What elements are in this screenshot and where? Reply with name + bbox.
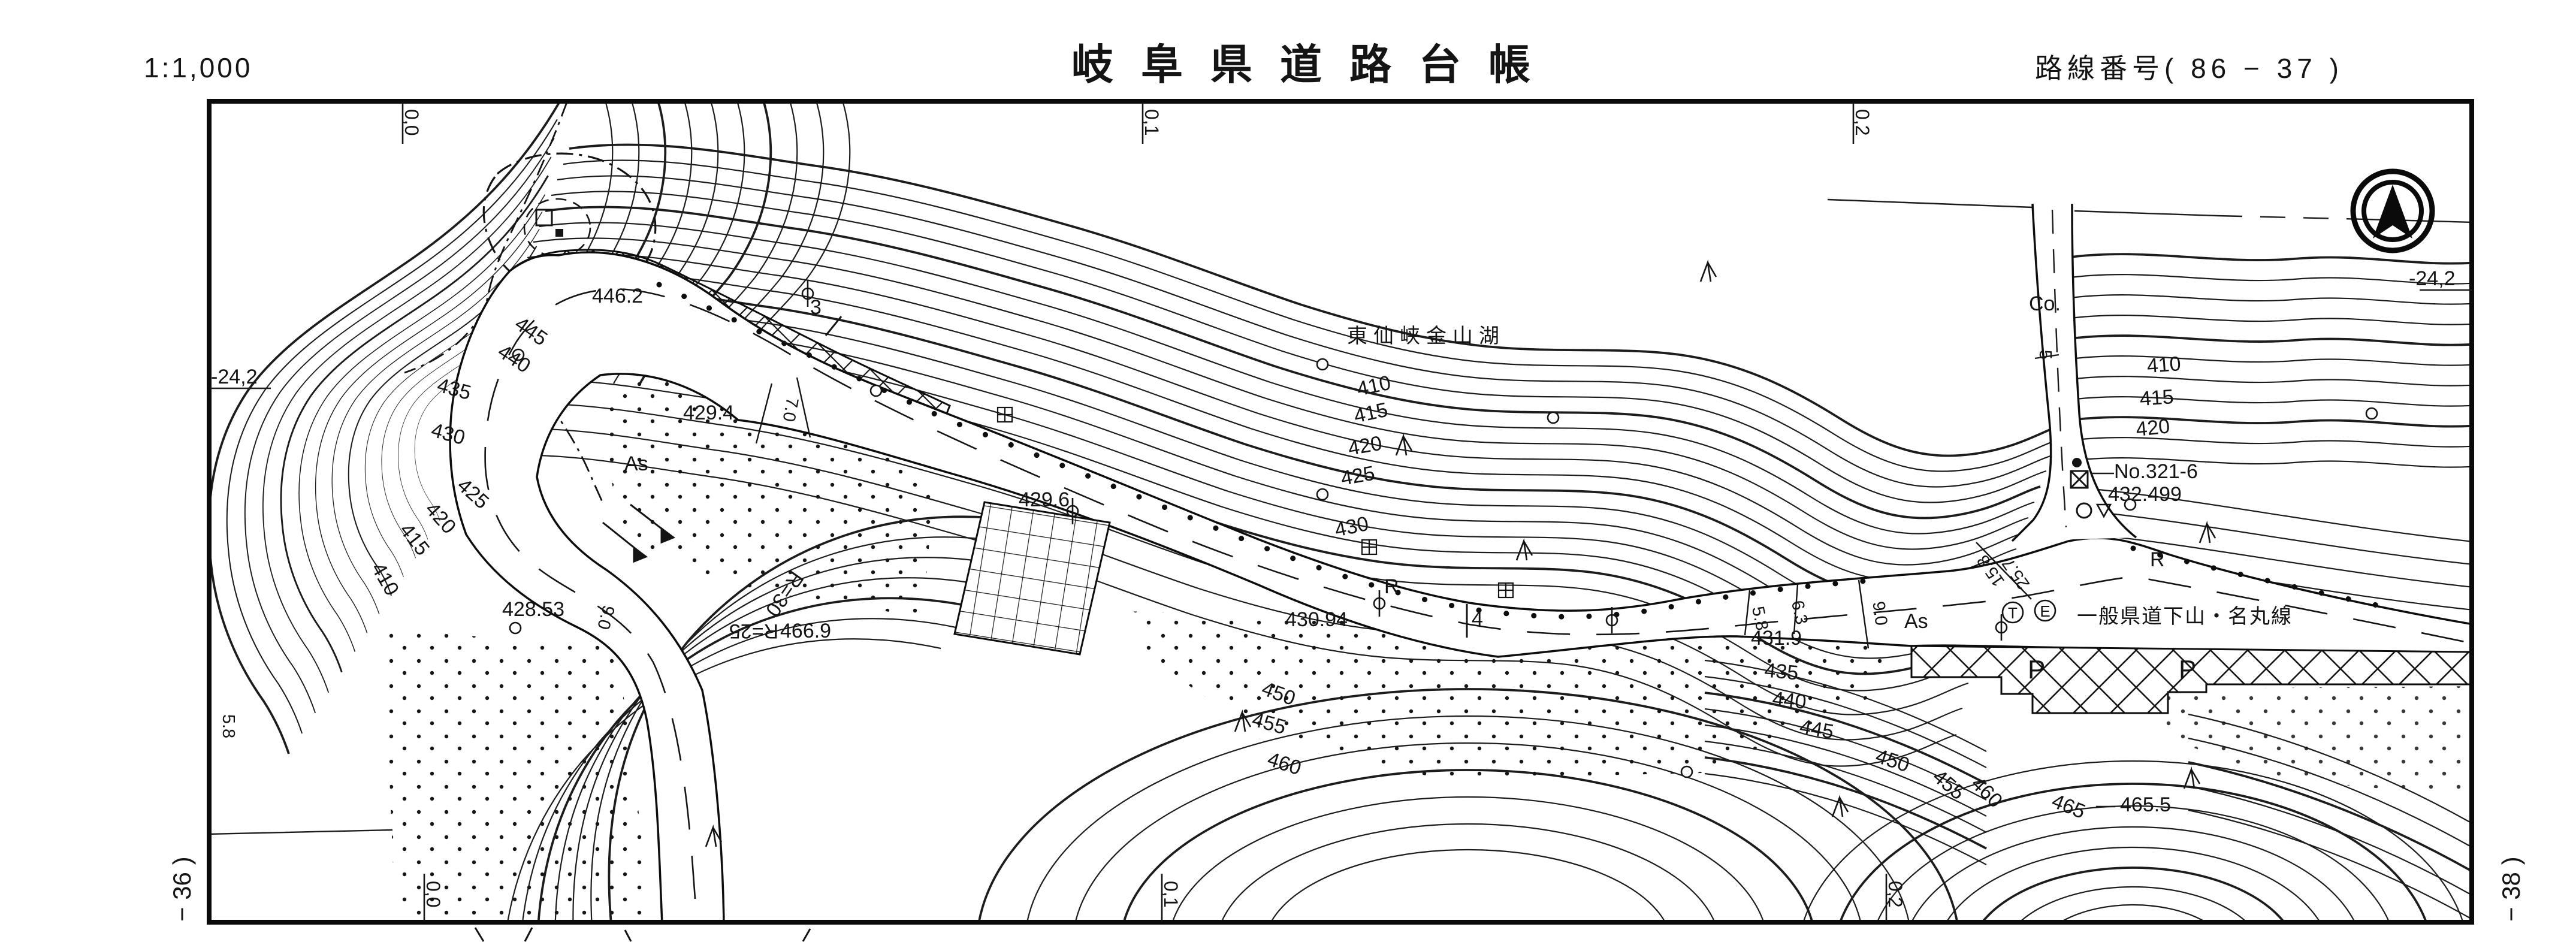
contour-label: 420 — [1346, 432, 1384, 460]
contour-label: 450 — [1873, 745, 1913, 777]
station-top-0: 0,0 — [401, 109, 422, 135]
contour-label: 460 — [1265, 748, 1304, 780]
contour-label: 465 — [2049, 790, 2089, 823]
contour-label: 435 — [1763, 659, 1799, 685]
rail-label-right: R — [2150, 548, 2165, 571]
contour-label: 460 — [1967, 772, 2007, 813]
dim-9-0-b: 9.0 — [1868, 600, 1891, 627]
channel-label: Co. — [2029, 292, 2061, 315]
contour-label: 425 — [1339, 462, 1376, 490]
north-compass-icon — [2353, 171, 2432, 250]
parking-label-right: P — [2179, 655, 2196, 684]
station-posts-top — [403, 102, 1853, 144]
elevation-right: -24,2 — [2409, 267, 2456, 290]
contour-label: 415 — [2139, 385, 2175, 410]
road-ledger-sheet: 1:1,000 岐阜県道路台帳 路線番号( 86 − 37 ) — [0, 0, 2576, 942]
contour-label: 410 — [2146, 352, 2182, 378]
lake-name: 東仙峡金山湖 — [1347, 325, 1505, 348]
contour-label: 410 — [367, 558, 403, 599]
spot-hill: 465.5 — [2120, 793, 2171, 816]
contour-label: 415 — [1352, 398, 1390, 428]
elevation-left: -24,2 — [211, 366, 258, 388]
contour-label: 430 — [1333, 512, 1370, 542]
spot-road-mid: 430.94 — [1285, 608, 1348, 631]
surface-label-right: As — [1904, 610, 1928, 633]
spot-curve: 466.9 — [780, 620, 831, 642]
benchmark-number: No.321-6 — [2114, 460, 2198, 483]
contour-label: 420 — [2135, 415, 2171, 441]
benchmark-elevation: 432.499 — [2108, 483, 2182, 506]
station-top-2: 0,2 — [1852, 109, 1873, 135]
surface-label-left: As — [624, 452, 648, 475]
contour-group-right-hill — [1798, 761, 2469, 942]
road-station-4: 4 — [1472, 608, 1483, 630]
channel-station-5: 5 — [2036, 350, 2055, 360]
svg-text:T: T — [2008, 604, 2018, 622]
spot-hairpin: 428.53 — [502, 598, 564, 621]
radius-r25: R=25 — [729, 620, 778, 642]
contour-label: 420 — [421, 498, 460, 539]
rail-label-left: R — [1384, 575, 1399, 598]
station-bottom-1: 0,1 — [1160, 881, 1182, 907]
sheet-number-right: − 38 ) — [2497, 856, 2525, 922]
station-bottom-0: 0,0 — [422, 881, 444, 907]
cutoff-fragments — [475, 928, 810, 941]
dim-5-8-a: 5.8 — [219, 714, 238, 738]
sheet-number-left: − 36 ) — [168, 856, 196, 922]
contour-label: 440 — [1771, 687, 1807, 714]
masonry-wall — [955, 502, 1110, 654]
road-name: 一般県道下山・名丸線 — [2077, 605, 2293, 628]
spot-wall: 429.6 — [1019, 488, 1070, 511]
station-top-1: 0,1 — [1141, 109, 1162, 135]
svg-text:E: E — [2040, 602, 2050, 620]
spot-road-left: 429.4 — [683, 401, 734, 424]
parking-label-left: P — [2028, 655, 2045, 684]
contour-label: 415 — [395, 519, 434, 560]
spot-peak: 446.2 — [592, 285, 643, 307]
road-station-3: 3 — [810, 296, 822, 319]
station-bottom-2: 0,2 — [1885, 881, 1906, 907]
map-canvas: -24,2 -24,2 − 36 ) − 38 ) 0,0 0,1 0,2 0,… — [0, 0, 2576, 942]
